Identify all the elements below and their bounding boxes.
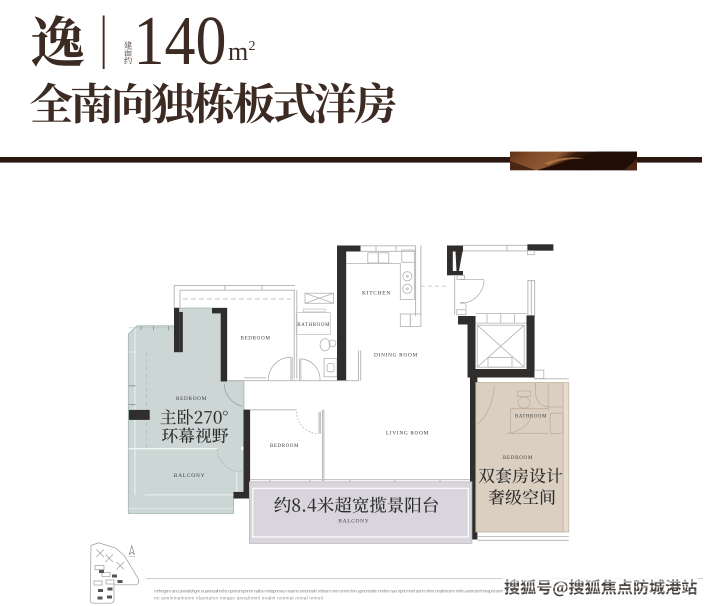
svg-text:BEDROOM: BEDROOM — [176, 396, 207, 402]
svg-text:BEDROOM: BEDROOM — [270, 443, 299, 449]
svg-text:BATHROOM: BATHROOM — [515, 413, 547, 419]
svg-text:BATHROOM: BATHROOM — [297, 322, 330, 328]
svg-text:nn annlnmalnnnm nlannalnn nmap: nn annlnmalnnnm nlannalnn nmapn annalnmn… — [154, 596, 323, 601]
svg-text:2: 2 — [249, 39, 256, 54]
svg-text:KITCHEN: KITCHEN — [362, 290, 391, 296]
svg-text:LIVING ROOM: LIVING ROOM — [386, 431, 429, 437]
svg-text:BALCONY: BALCONY — [174, 473, 206, 479]
svg-text:BEDROOM: BEDROOM — [503, 455, 533, 461]
svg-text:m: m — [228, 37, 248, 66]
svg-text:BALCONY: BALCONY — [338, 519, 369, 525]
svg-text:DINING ROOM: DINING ROOM — [374, 352, 418, 358]
svg-text:140: 140 — [134, 2, 227, 79]
svg-text:mrhngsm anu pwnalohgm euannoal: mrhngsm anu pwnalohgm euannoalnmhs npnno… — [154, 589, 512, 594]
svg-text:BEDROOM: BEDROOM — [241, 336, 271, 342]
